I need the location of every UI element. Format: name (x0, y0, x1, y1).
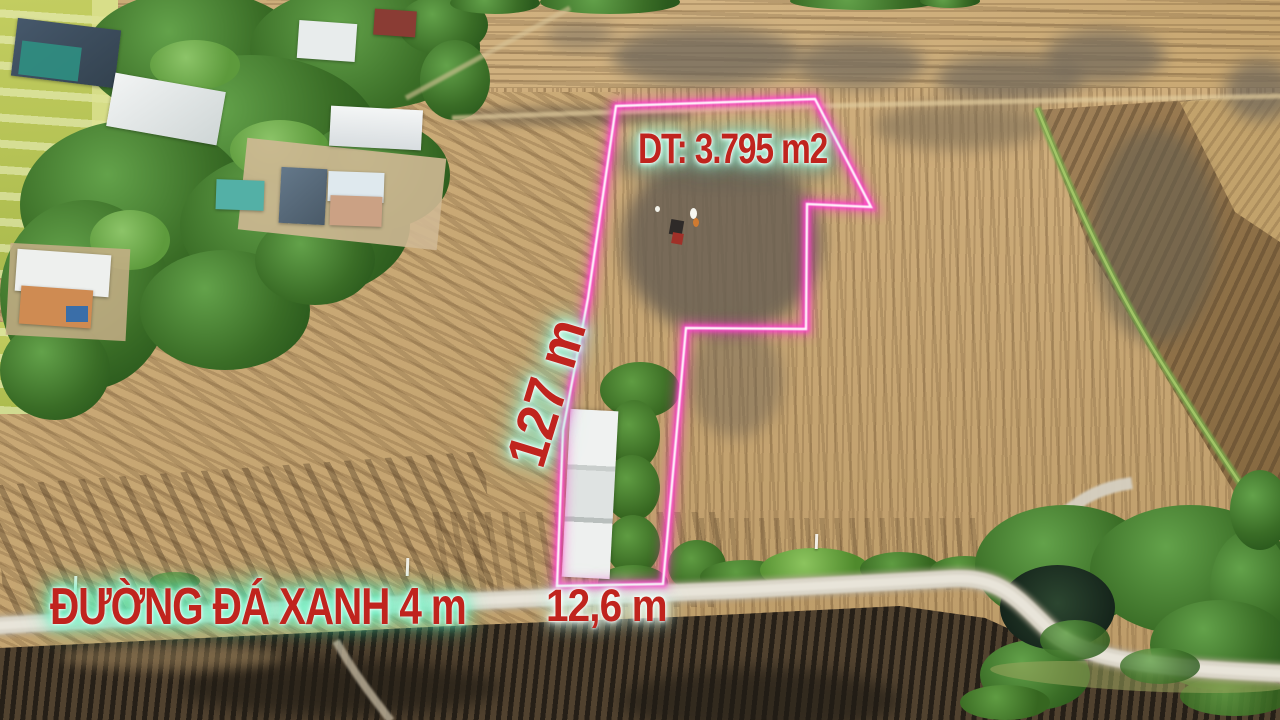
aerial-photo: DT: 3.795 m2 127 m 12,6 m ĐƯỜNG ĐÁ XANH … (0, 0, 1280, 720)
area-label: DT: 3.795 m2 (638, 128, 827, 171)
road-name-label: ĐƯỜNG ĐÁ XANH 4 m (50, 581, 466, 633)
frontage-label: 12,6 m (546, 583, 667, 628)
